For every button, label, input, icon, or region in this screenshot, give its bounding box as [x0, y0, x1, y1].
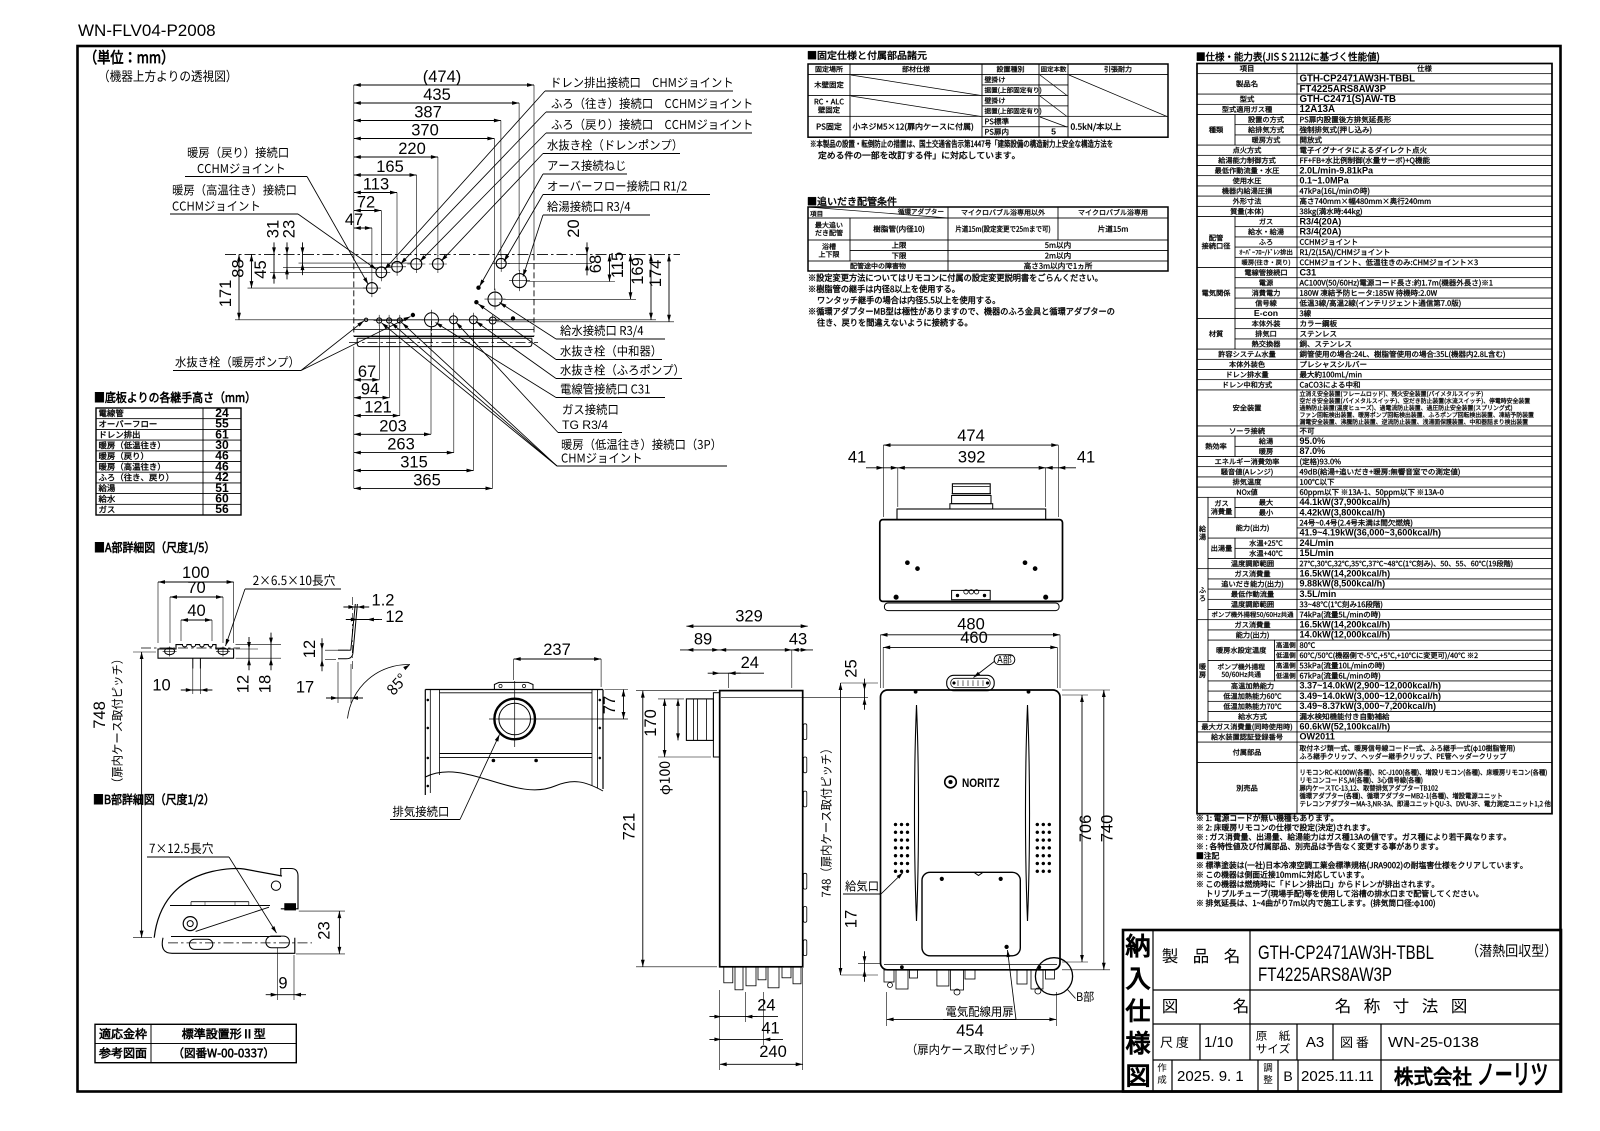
svg-text:56: 56	[215, 502, 229, 516]
svg-text:24: 24	[757, 997, 775, 1015]
svg-text:9.88kW(8,500kcal/h): 9.88kW(8,500kcal/h)	[1300, 579, 1386, 589]
svg-text:72: 72	[357, 194, 375, 212]
svg-text:WN-FLV04-P2008: WN-FLV04-P2008	[78, 21, 216, 40]
svg-text:OW2011: OW2011	[1300, 732, 1335, 742]
svg-text:3.49~8.37kW(3,000~7,200kcal/h): 3.49~8.37kW(3,000~7,200kcal/h)	[1300, 701, 1437, 711]
svg-text:748: 748	[91, 701, 109, 729]
svg-text:NORITZ: NORITZ	[962, 778, 1000, 790]
svg-text:25: 25	[843, 659, 861, 677]
svg-text:392: 392	[958, 449, 986, 467]
svg-text:2025. 9. 1: 2025. 9. 1	[1177, 1068, 1244, 1085]
svg-text:R3/4(20A): R3/4(20A)	[1300, 227, 1342, 237]
svg-text:435: 435	[423, 86, 451, 104]
svg-text:12A13A: 12A13A	[1300, 104, 1336, 115]
svg-text:740: 740	[1098, 815, 1116, 843]
svg-text:315: 315	[400, 454, 428, 472]
svg-text:TG R3/4: TG R3/4	[562, 418, 608, 432]
svg-text:165: 165	[376, 158, 404, 176]
svg-text:3.37~14.0kW(2,900~12,000kcal/h: 3.37~14.0kW(2,900~12,000kcal/h)	[1300, 681, 1442, 691]
svg-text:721: 721	[621, 813, 639, 841]
svg-text:95.0%: 95.0%	[1300, 436, 1326, 446]
svg-text:10: 10	[152, 677, 170, 695]
svg-text:2025.11.11: 2025.11.11	[1301, 1068, 1374, 1085]
svg-text:15L/min: 15L/min	[1300, 548, 1334, 558]
svg-text:23: 23	[281, 220, 299, 238]
svg-text:9: 9	[278, 975, 287, 993]
svg-text:41.9~4.19kW(36,000~3,600kcal/h: 41.9~4.19kW(36,000~3,600kcal/h)	[1300, 528, 1442, 538]
svg-text:370: 370	[411, 122, 439, 140]
svg-text:113: 113	[363, 176, 389, 194]
svg-text:460: 460	[960, 629, 988, 647]
svg-text:12: 12	[301, 640, 319, 658]
svg-text:329: 329	[735, 608, 763, 626]
svg-text:12: 12	[385, 608, 403, 626]
svg-text:20: 20	[565, 219, 583, 237]
svg-text:263: 263	[387, 436, 415, 454]
svg-text:1/10: 1/10	[1204, 1034, 1233, 1051]
svg-text:R3/4(20A): R3/4(20A)	[1300, 216, 1342, 226]
svg-text:121: 121	[364, 399, 392, 417]
svg-text:4.42kW(3,800kcal/h): 4.42kW(3,800kcal/h)	[1300, 507, 1386, 517]
svg-text:0.1~1.0MPa: 0.1~1.0MPa	[1300, 176, 1350, 186]
svg-text:17: 17	[843, 910, 861, 928]
svg-text:(474): (474)	[423, 68, 462, 86]
svg-text:174: 174	[647, 260, 665, 288]
svg-text:60.6kW(52,100kcal/h): 60.6kW(52,100kcal/h)	[1300, 722, 1391, 732]
svg-text:40: 40	[187, 602, 205, 620]
svg-text:A3: A3	[1306, 1034, 1324, 1051]
svg-text:77: 77	[601, 696, 619, 714]
svg-text:203: 203	[379, 417, 407, 435]
svg-text:88: 88	[230, 259, 248, 277]
svg-text:67: 67	[358, 363, 376, 381]
svg-text:44.1kW(37,900kcal/h): 44.1kW(37,900kcal/h)	[1300, 497, 1391, 507]
svg-text:16.5kW(14,200kcal/h): 16.5kW(14,200kcal/h)	[1300, 569, 1391, 579]
svg-text:17: 17	[296, 679, 314, 697]
svg-text:170: 170	[642, 709, 660, 737]
svg-text:171: 171	[217, 280, 235, 308]
svg-text:E-con: E-con	[1254, 308, 1278, 318]
svg-text:43: 43	[789, 631, 807, 649]
svg-text:454: 454	[956, 1022, 984, 1040]
svg-text:B: B	[1283, 1068, 1292, 1084]
svg-text:474: 474	[957, 427, 985, 445]
svg-text:169: 169	[629, 257, 647, 285]
svg-text:237: 237	[543, 641, 571, 659]
svg-text:706: 706	[1077, 815, 1095, 843]
svg-text:1.2: 1.2	[372, 592, 395, 610]
svg-text:WN-25-0138: WN-25-0138	[1388, 1034, 1479, 1051]
svg-text:12: 12	[235, 675, 253, 693]
svg-text:41: 41	[1077, 449, 1095, 467]
svg-text:45: 45	[252, 260, 270, 278]
svg-text:115: 115	[609, 252, 627, 278]
svg-text:41: 41	[848, 449, 866, 467]
svg-text:365: 365	[413, 471, 441, 489]
svg-text:14.0kW(12,000kcal/h): 14.0kW(12,000kcal/h)	[1300, 630, 1391, 640]
svg-text:240: 240	[759, 1043, 787, 1061]
svg-text:C31: C31	[1300, 267, 1317, 277]
svg-text:87.0%: 87.0%	[1300, 446, 1326, 456]
svg-text:18: 18	[257, 675, 275, 693]
svg-text:387: 387	[414, 104, 442, 122]
svg-text:FT4225ARS8AW3P: FT4225ARS8AW3P	[1258, 965, 1392, 986]
svg-text:GTH-CP2471AW3H-TBBL: GTH-CP2471AW3H-TBBL	[1258, 943, 1434, 964]
svg-text:68: 68	[587, 255, 605, 273]
svg-text:3.49~14.0kW(3,000~12,000kcal/h: 3.49~14.0kW(3,000~12,000kcal/h)	[1300, 691, 1442, 701]
svg-text:23: 23	[316, 921, 334, 939]
svg-text:41: 41	[761, 1020, 779, 1038]
svg-text:70: 70	[187, 579, 205, 597]
svg-text:3.5L/min: 3.5L/min	[1300, 589, 1337, 599]
svg-text:89: 89	[694, 631, 712, 649]
svg-text:94: 94	[361, 381, 379, 399]
svg-text:5: 5	[1051, 127, 1056, 137]
svg-text:16.5kW(14,200kcal/h): 16.5kW(14,200kcal/h)	[1300, 620, 1391, 630]
svg-text:2.0L/min-9.81kPa: 2.0L/min-9.81kPa	[1300, 165, 1375, 175]
svg-text:24: 24	[741, 654, 759, 672]
svg-text:24L/min: 24L/min	[1300, 538, 1334, 548]
svg-text:220: 220	[398, 140, 426, 158]
